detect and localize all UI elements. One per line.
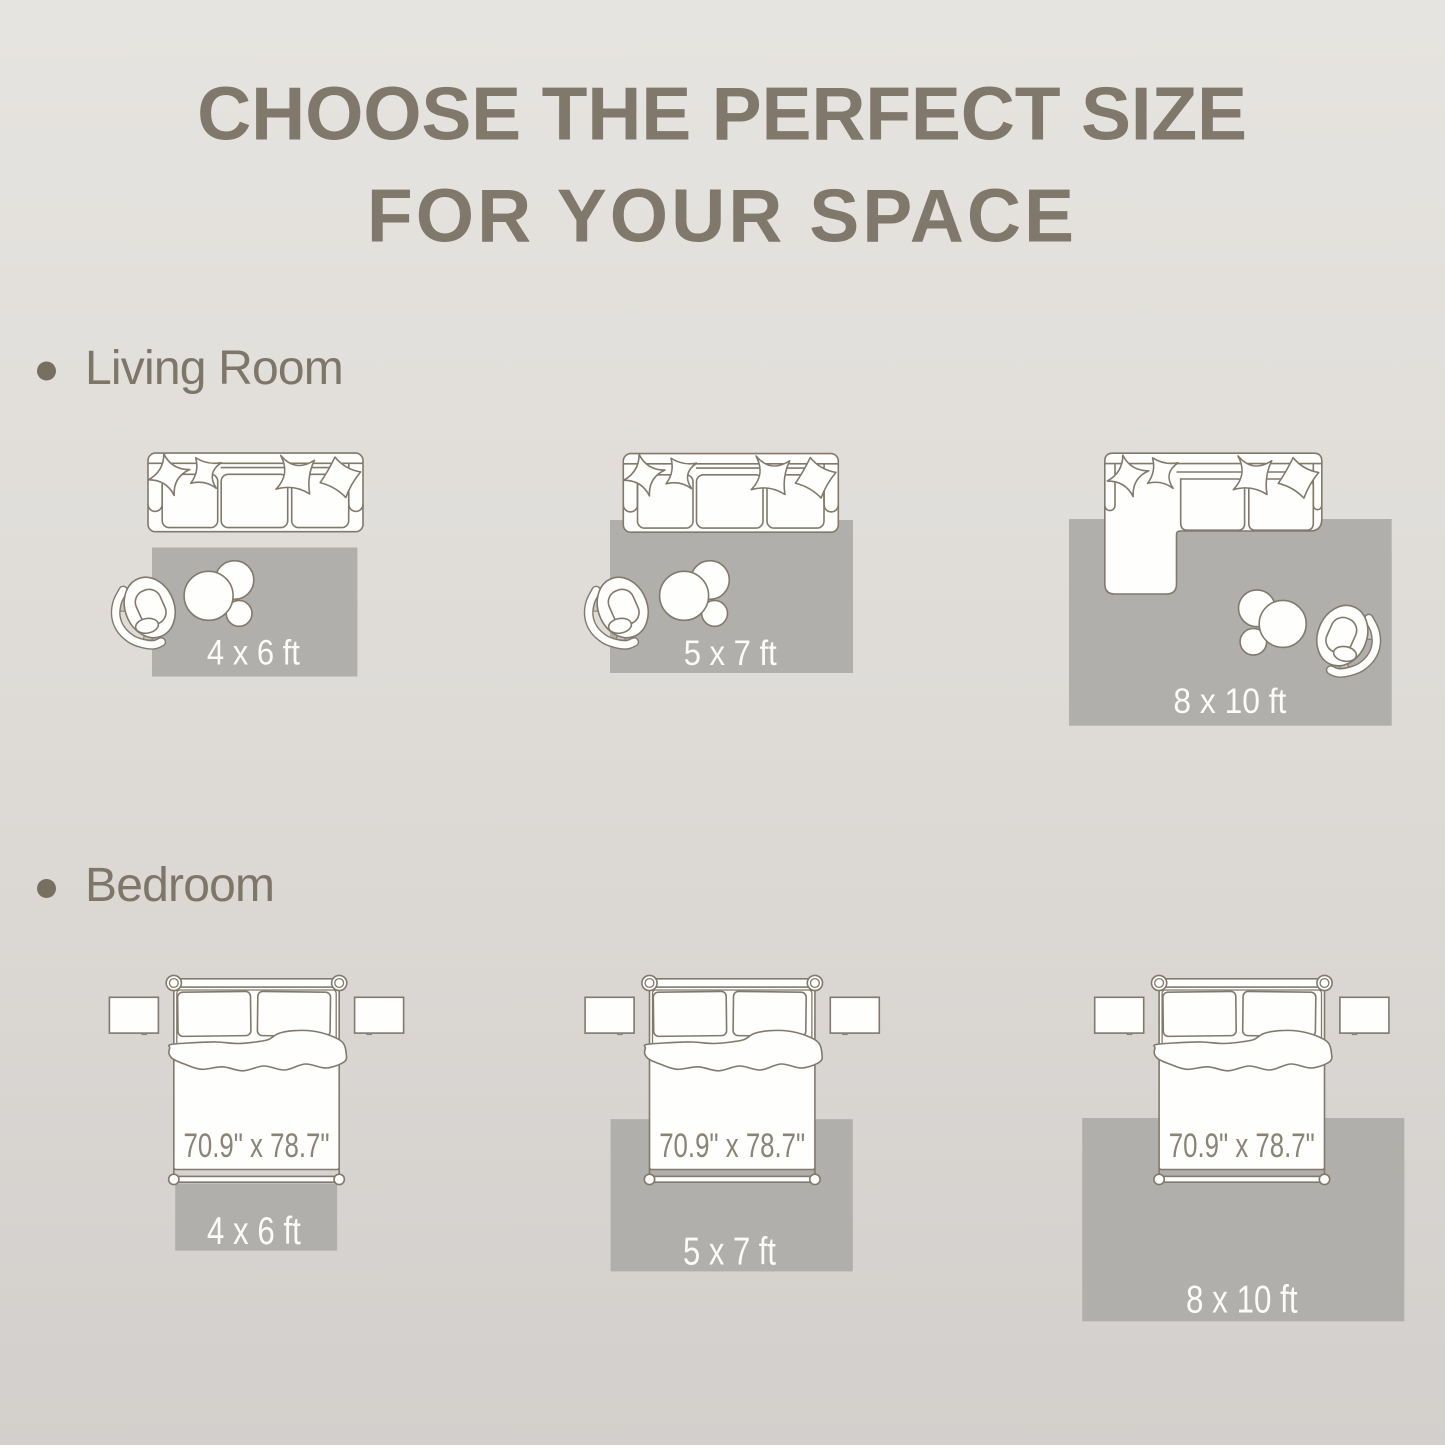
svg-text:70.9" x 78.7": 70.9" x 78.7" [184,1127,330,1165]
svg-text:FOR YOUR SPACE: FOR YOUR SPACE [367,174,1077,258]
svg-text:Living Room: Living Room [85,342,343,395]
svg-text:8 x 10 ft: 8 x 10 ft [1173,682,1286,721]
svg-text:70.9" x 78.7": 70.9" x 78.7" [1169,1127,1315,1165]
svg-text:4 x 6 ft: 4 x 6 ft [207,634,300,673]
svg-text:5 x 7 ft: 5 x 7 ft [684,634,777,673]
svg-text:5 x 7 ft: 5 x 7 ft [683,1231,776,1274]
svg-text:4 x 6 ft: 4 x 6 ft [207,1210,301,1253]
svg-text:CHOOSE THE PERFECT SIZE: CHOOSE THE PERFECT SIZE [197,72,1247,156]
svg-text:Bedroom: Bedroom [85,859,274,912]
svg-text:70.9" x 78.7": 70.9" x 78.7" [659,1127,805,1165]
svg-text:8 x 10 ft: 8 x 10 ft [1186,1279,1298,1322]
